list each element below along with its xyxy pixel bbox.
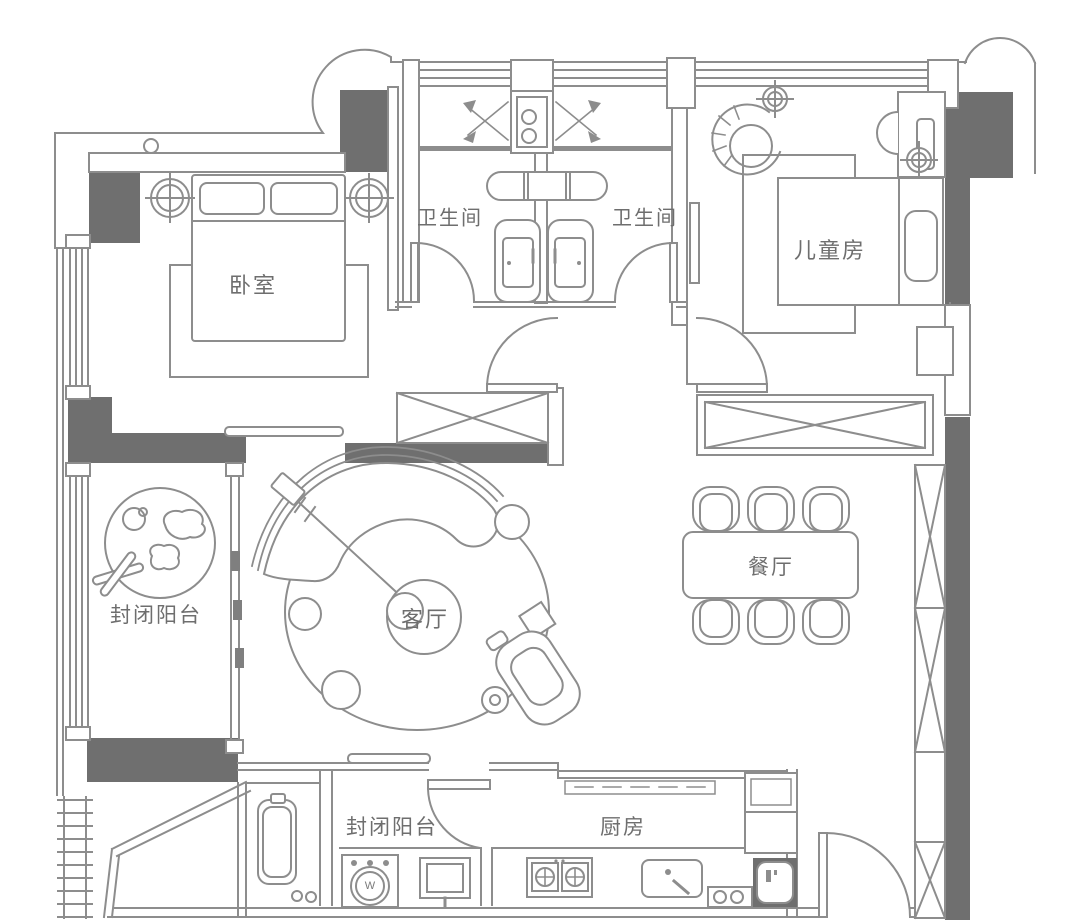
stove-icon xyxy=(527,858,592,897)
room-label-bedroom: 卧室 xyxy=(229,268,277,300)
room-label-bathroom-right: 卫生间 xyxy=(612,202,678,231)
sliding-panel xyxy=(225,427,343,436)
floor-plan: 卧室 卫生间 卫生间 儿童房 封闭阳台 客厅 餐厅 封闭阳台 厨房 W xyxy=(0,0,1080,920)
round-table-icon xyxy=(105,488,215,598)
ceiling-light-icon xyxy=(345,174,393,222)
dining-chair-icon xyxy=(693,487,739,531)
vanity-icon xyxy=(487,172,607,200)
room-label-living-room: 客厅 xyxy=(401,602,449,634)
balcony-left-furniture xyxy=(90,488,215,599)
room-label-dining-room: 餐厅 xyxy=(748,551,794,581)
room-label-balcony-left: 封闭阳台 xyxy=(110,599,202,629)
toilet-icon xyxy=(495,220,540,302)
windows xyxy=(66,235,90,740)
room-label-kids-room: 儿童房 xyxy=(794,233,866,265)
tv-icon xyxy=(348,754,430,763)
kitchen-fixtures xyxy=(258,773,797,907)
ceiling-light-icon xyxy=(146,174,194,222)
dining-chair-icon xyxy=(748,600,794,644)
dining-chair-icon xyxy=(693,600,739,644)
bathroom-fixtures xyxy=(463,91,607,302)
ladder-icon xyxy=(64,797,86,918)
side-table xyxy=(917,327,953,375)
floor-plan-drawing xyxy=(0,0,1080,920)
toilet-icon xyxy=(548,220,593,302)
dining-chair-icon xyxy=(803,487,849,531)
dining-chair-icon xyxy=(748,487,794,531)
balcony-partition xyxy=(226,463,244,753)
dining-chair-icon xyxy=(803,600,849,644)
spiral-chair-icon xyxy=(712,104,780,174)
desk-chair xyxy=(877,112,898,154)
sink-icon xyxy=(642,860,702,897)
kids-room-furniture xyxy=(712,81,953,375)
room-label-balcony-bottom: 封闭阳台 xyxy=(346,811,438,841)
bathtub-icon xyxy=(258,794,316,902)
cabinets xyxy=(397,393,945,918)
room-label-kitchen: 厨房 xyxy=(600,811,646,841)
room-label-bathroom-left: 卫生间 xyxy=(417,202,483,231)
bedroom-furniture xyxy=(146,174,393,436)
washer-letter: W xyxy=(365,880,375,892)
fridge-icon xyxy=(753,858,797,907)
